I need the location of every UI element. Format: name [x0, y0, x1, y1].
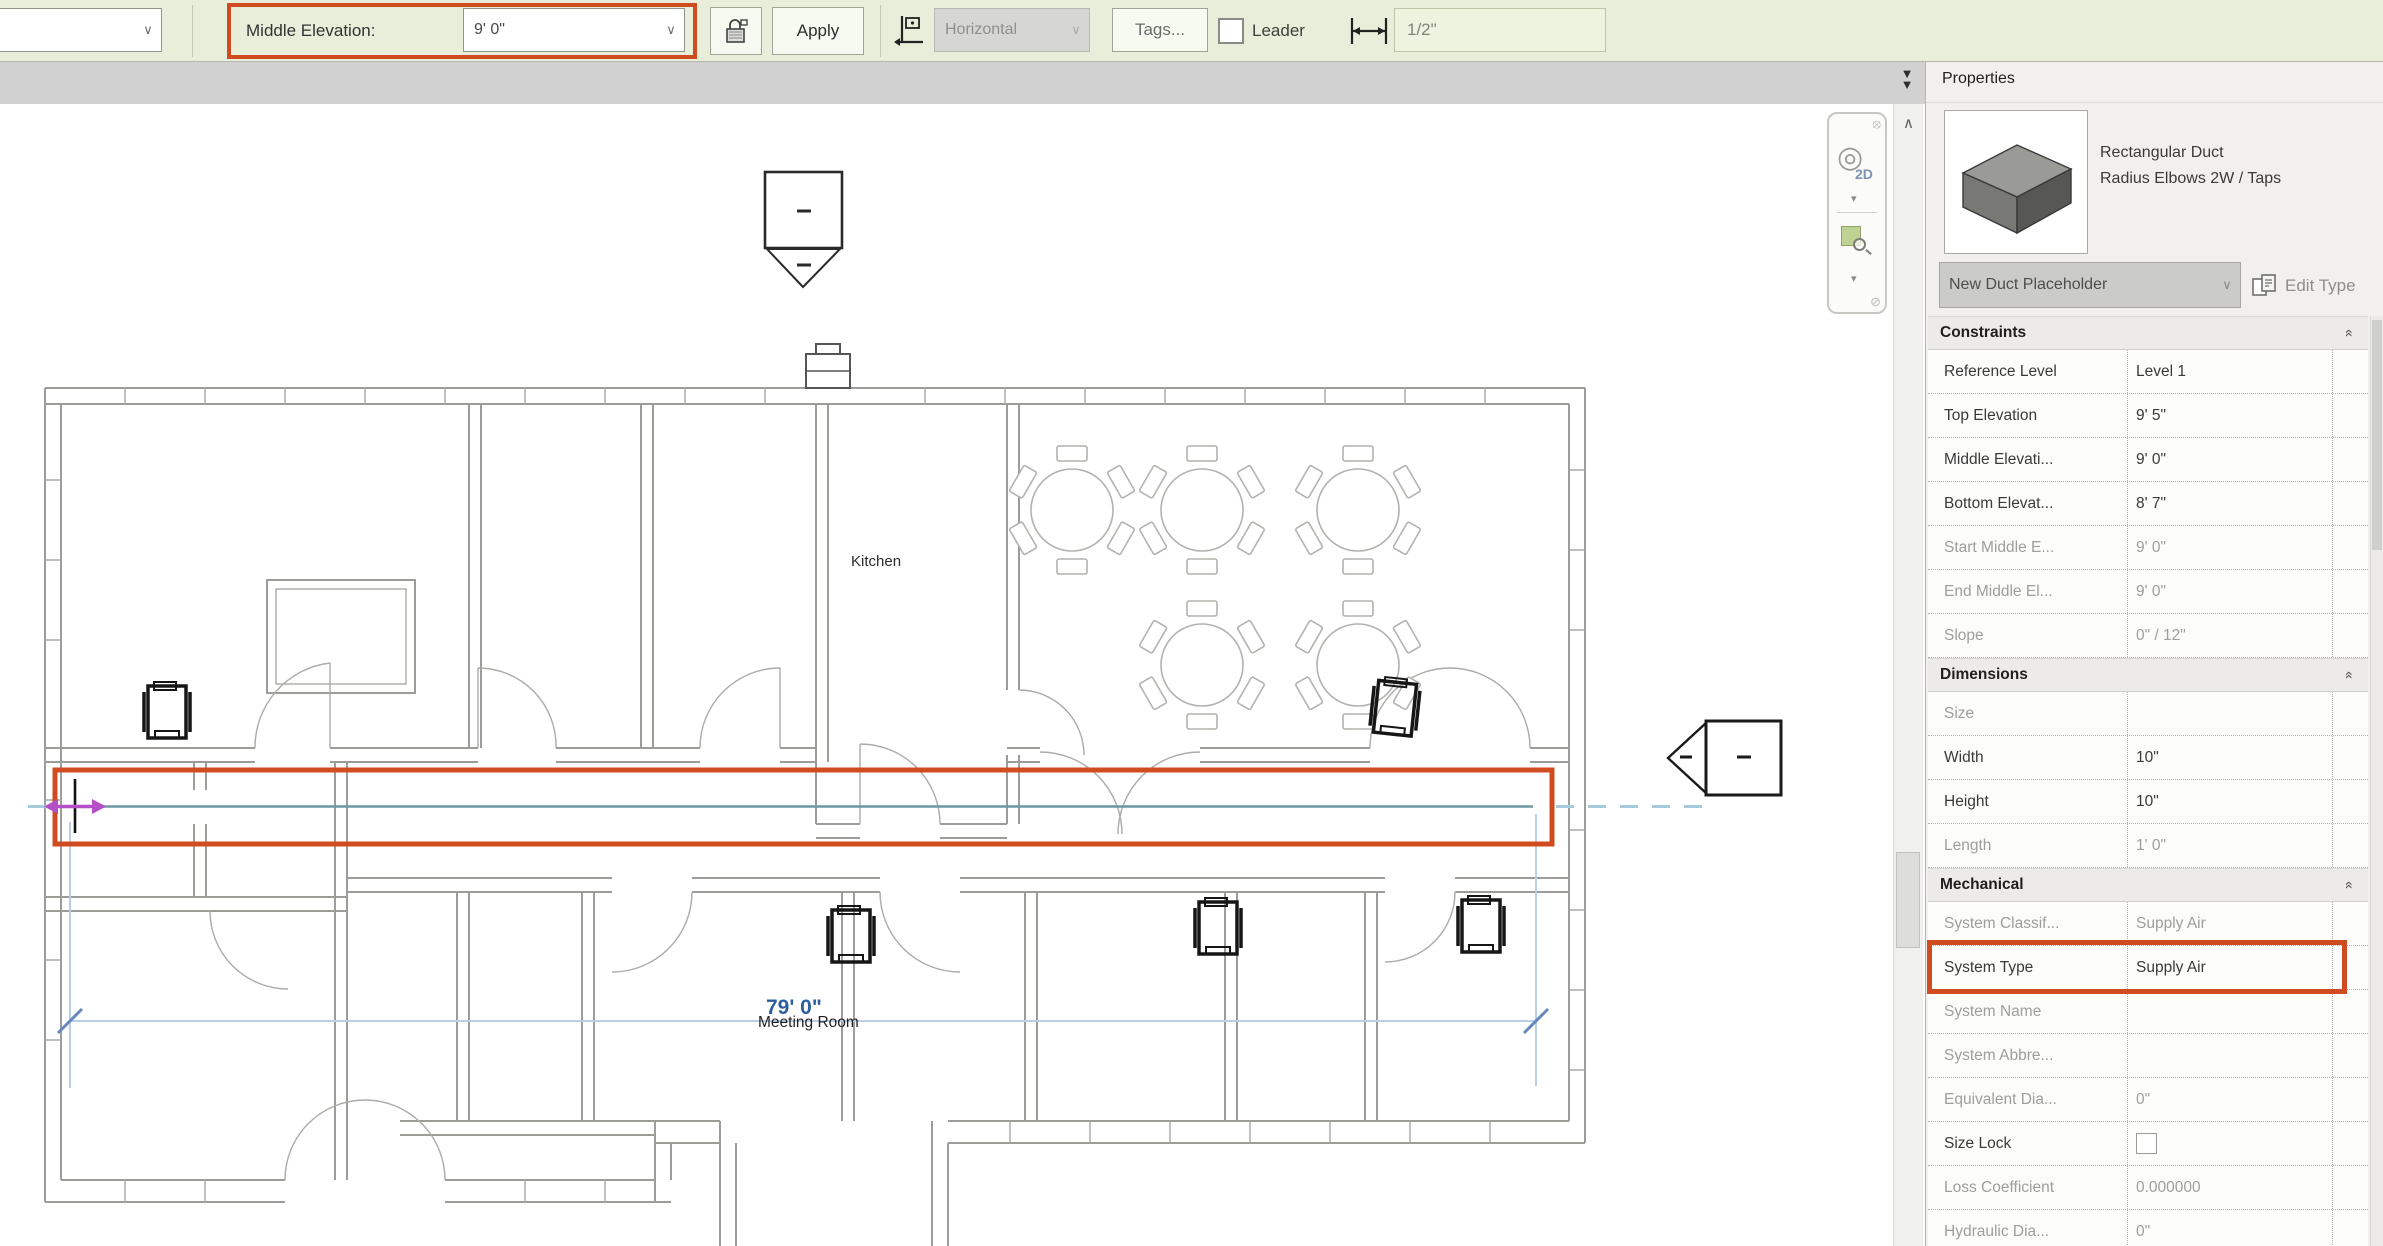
property-row-reference-level[interactable]: Reference Level Level 1: [1928, 350, 2368, 394]
meeting-room-label: Meeting Room: [758, 1014, 859, 1031]
property-row-top-elevation[interactable]: Top Elevation 9' 5": [1928, 394, 2368, 438]
tag-orientation-icon: [893, 13, 931, 49]
chevron-down-icon: ∨: [135, 22, 161, 38]
property-row-system-classification: System Classif... Supply Air: [1928, 902, 2368, 946]
elevation-marker[interactable]: [1668, 721, 1781, 795]
lock-icon: [721, 16, 751, 46]
type-selector-dropdown[interactable]: New Duct Placeholder ∨: [1939, 262, 2241, 308]
type-name-line2: Radius Elbows 2W / Taps: [2100, 166, 2383, 192]
leader-checkbox[interactable]: [1218, 18, 1244, 44]
property-row-bottom-elevation[interactable]: Bottom Elevat... 8' 7": [1928, 482, 2368, 526]
leader-offset-field[interactable]: 1/2": [1394, 8, 1606, 52]
section-header-mechanical[interactable]: Mechanical «: [1928, 868, 2368, 902]
property-row-hydraulic-diameter: Hydraulic Dia... 0": [1928, 1210, 2368, 1246]
edit-type-icon: [2251, 272, 2279, 300]
type-combo-left[interactable]: ∨: [0, 8, 162, 52]
scroll-up-icon[interactable]: ∧: [1894, 114, 1923, 132]
type-preview-image[interactable]: [1944, 110, 2088, 254]
canvas-scrollbar[interactable]: ∧: [1893, 104, 1923, 1246]
middle-elevation-label: Middle Elevation:: [246, 0, 375, 62]
collapse-navbar-icon[interactable]: ⊘: [1870, 294, 1881, 310]
close-icon[interactable]: ⦻: [1872, 116, 1881, 132]
middle-elevation-dropdown[interactable]: 9' 0" ∨: [463, 8, 685, 52]
collapse-section-icon[interactable]: «: [2342, 671, 2358, 679]
duct-3d-icon: [1945, 111, 2087, 253]
type-name: Rectangular Duct Radius Elbows 2W / Taps: [2100, 140, 2383, 192]
collapse-section-icon[interactable]: «: [2342, 881, 2358, 889]
properties-title: Properties: [1942, 70, 2015, 88]
property-row-equivalent-diameter: Equivalent Dia... 0": [1928, 1078, 2368, 1122]
chevron-down-icon[interactable]: ▾: [1851, 272, 1857, 285]
chevron-down-icon[interactable]: ▾: [1851, 192, 1857, 205]
section-marker[interactable]: [765, 172, 842, 287]
magnifier-icon: [1853, 238, 1866, 251]
roof-vent-symbol: [806, 344, 850, 388]
property-row-start-middle-elevation: Start Middle E... 9' 0": [1928, 526, 2368, 570]
chevron-down-icon: ∨: [658, 22, 684, 38]
property-row-slope: Slope 0" / 12": [1928, 614, 2368, 658]
collapse-section-icon[interactable]: «: [2342, 329, 2358, 337]
property-row-loss-coefficient: Loss Coefficient 0.000000: [1928, 1166, 2368, 1210]
leader-offset-icon: [1348, 15, 1390, 47]
property-row-system-name: System Name: [1928, 990, 2368, 1034]
properties-panel: Properties Rectangular Duct Radius Elbow…: [1925, 62, 2383, 1246]
section-header-constraints[interactable]: Constraints «: [1928, 316, 2368, 350]
leader-label: Leader: [1252, 0, 1305, 62]
section-header-dimensions[interactable]: Dimensions «: [1928, 658, 2368, 692]
tag-orientation-dropdown[interactable]: Horizontal ∨: [934, 8, 1090, 52]
property-row-system-type[interactable]: System Type Supply Air: [1928, 946, 2368, 990]
property-row-middle-elevation[interactable]: Middle Elevati... 9' 0": [1928, 438, 2368, 482]
navigation-bar: ⦻ ◎ 2D ▾ ▾ ⊘: [1827, 112, 1887, 314]
property-row-size: Size: [1928, 692, 2368, 736]
property-row-length: Length 1' 0": [1928, 824, 2368, 868]
options-bar: ∨ Middle Elevation: 9' 0" ∨ Apply Horizo…: [0, 0, 2383, 62]
scrollbar-thumb[interactable]: [2372, 320, 2382, 550]
kitchen-label: Kitchen: [851, 553, 901, 570]
properties-scrollbar[interactable]: [2370, 316, 2383, 1246]
lock-toggle-button[interactable]: [710, 7, 762, 55]
chevron-down-icon: ∨: [1063, 22, 1089, 38]
apply-button[interactable]: Apply: [772, 7, 864, 55]
properties-grid: Constraints « Reference Level Level 1 To…: [1928, 316, 2368, 1246]
property-row-width[interactable]: Width 10": [1928, 736, 2368, 780]
chevron-down-icon: ∨: [2214, 277, 2240, 293]
steering-wheel-2d-label: 2D: [1855, 166, 1873, 182]
temporary-dimension[interactable]: 79' 0": [58, 814, 1548, 1088]
tags-button[interactable]: Tags...: [1112, 8, 1208, 52]
edit-type-button[interactable]: Edit Type: [2251, 270, 2383, 302]
size-lock-checkbox[interactable]: [2136, 1133, 2157, 1154]
dining-tables: [1009, 446, 1421, 729]
scrollbar-thumb[interactable]: [1896, 852, 1920, 948]
property-row-end-middle-elevation: End Middle El... 9' 0": [1928, 570, 2368, 614]
property-row-system-abbreviation: System Abbre...: [1928, 1034, 2368, 1078]
type-name-line1: Rectangular Duct: [2100, 140, 2383, 166]
property-row-height[interactable]: Height 10": [1928, 780, 2368, 824]
property-row-size-lock[interactable]: Size Lock: [1928, 1122, 2368, 1166]
